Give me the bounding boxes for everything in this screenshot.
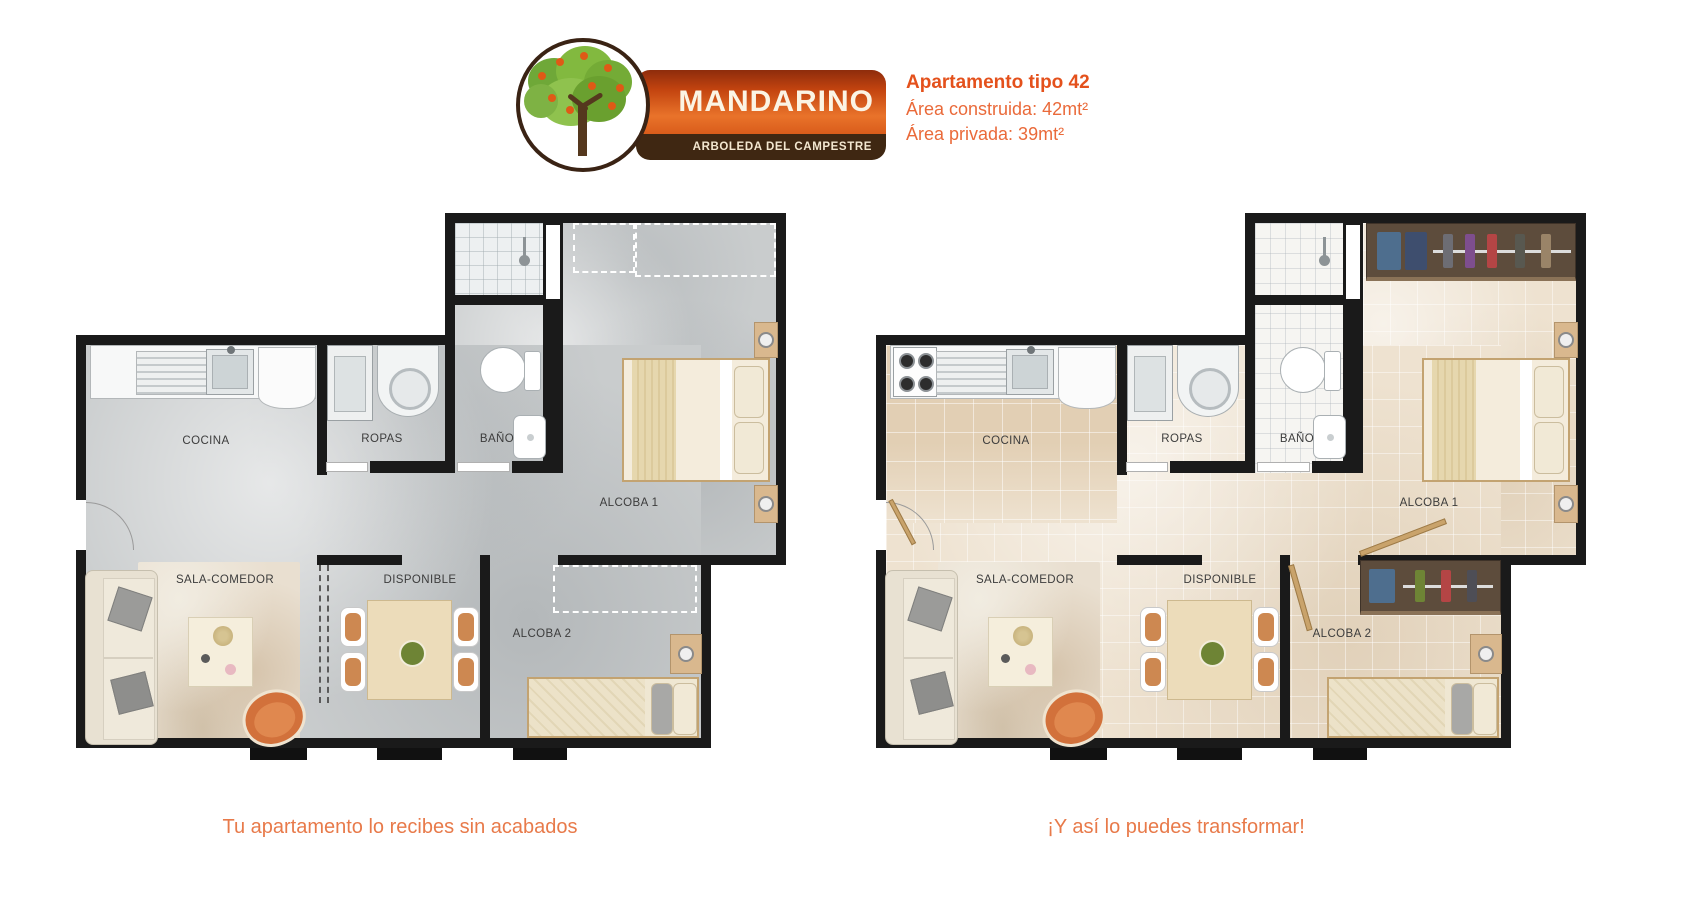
kitchen-faucet (1027, 346, 1035, 354)
wall (876, 738, 1511, 748)
folded-clothes (1405, 232, 1427, 270)
room-label-ropas: ROPAS (361, 433, 402, 445)
tree-fruit (556, 58, 564, 66)
bed-sheet (1520, 360, 1532, 480)
stove-burner (899, 353, 915, 369)
stove-burner (899, 376, 915, 392)
wall (317, 555, 402, 565)
optional-wall-outline (319, 565, 329, 703)
nightstand (1554, 322, 1578, 358)
bed-alcoba1 (622, 358, 770, 482)
tree-fruit (616, 84, 624, 92)
wall (76, 738, 711, 748)
bed-blanket (632, 360, 676, 480)
bed-alcoba2 (1327, 677, 1499, 738)
floorplan-sin-acabados: COCINA ROPAS BAÑO ALCOBA 1 SALA-COMEDOR … (76, 213, 786, 748)
wall (480, 555, 490, 748)
hanging-clothes (1441, 570, 1451, 602)
bed-blanket (529, 679, 645, 736)
nightstand-lamp (678, 646, 694, 662)
stove-burner (918, 376, 934, 392)
coffee-table (188, 617, 253, 687)
dining-chair (453, 652, 479, 692)
page: { "header": { "brand": "MANDARINO", "tag… (0, 0, 1701, 900)
bed-alcoba1 (1422, 358, 1570, 482)
room-label-sala-comedor: SALA-COMEDOR (976, 574, 1074, 586)
closet-alcoba1 (1366, 223, 1576, 281)
bed-sheet (720, 360, 732, 480)
wall (1245, 213, 1586, 223)
room-label-sala-comedor: SALA-COMEDOR (176, 574, 274, 586)
wall (1117, 555, 1202, 565)
floorplan-transformado: COCINA ROPAS BAÑO ALCOBA 1 SALA-COMEDOR … (876, 213, 1586, 748)
wall (445, 213, 455, 473)
apartment-info: Apartamento tipo 42 Área construida: 42m… (906, 72, 1246, 149)
dining-chair (1253, 652, 1279, 692)
nightstand-knob (1558, 332, 1574, 348)
room-label-cocina: COCINA (182, 435, 229, 447)
hanging-clothes (1443, 234, 1453, 268)
nightstand (1554, 485, 1578, 523)
optional-closet-outline (573, 223, 635, 273)
laundry-sink (327, 345, 373, 421)
water-heater (1177, 345, 1239, 417)
hanging-clothes (1541, 234, 1551, 268)
logo-banner-brown: ARBOLEDA DEL CAMPESTRE (636, 134, 886, 160)
bathroom-door-gap (546, 225, 560, 299)
nightstand-knob (1558, 496, 1574, 512)
hanging-clothes (1415, 570, 1425, 602)
pillow (734, 422, 764, 474)
dining-chair (453, 607, 479, 647)
water-heater-lid (1189, 368, 1231, 410)
hanging-clothes (1515, 234, 1525, 268)
dining-chair (1140, 607, 1166, 647)
folded-clothes (1377, 232, 1401, 270)
dining-table (367, 600, 452, 700)
room-label-alcoba1: ALCOBA 1 (1400, 497, 1459, 509)
nightstand-knob (758, 496, 774, 512)
kitchen-sink-basin (1012, 355, 1048, 389)
window-sill (1313, 748, 1367, 760)
laundry-sink-basin (1134, 356, 1166, 412)
wall (558, 555, 786, 565)
chair-seat (1258, 658, 1274, 686)
shower-divider-wall (455, 295, 543, 305)
armchair-cushion (1049, 696, 1101, 743)
nightstand-knob (758, 332, 774, 348)
toilet (1280, 347, 1326, 393)
bathroom-sink (1313, 415, 1346, 459)
brand-name: MANDARINO (678, 85, 874, 119)
tree-fruit (608, 102, 616, 110)
dining-chair (340, 652, 366, 692)
tree-fruit (566, 106, 574, 114)
kitchen-drainboard (936, 351, 1008, 395)
nightstand (754, 485, 778, 523)
table-decor (225, 664, 236, 675)
bathroom-sink-drain (1327, 434, 1334, 441)
nightstand-lamp (1478, 646, 1494, 662)
nightstand (1470, 634, 1502, 674)
kitchen-sink-basin (212, 355, 248, 389)
hanging-clothes (1467, 570, 1477, 602)
wall (876, 335, 1255, 345)
coffee-table (988, 617, 1053, 687)
toilet (480, 347, 526, 393)
hanging-clothes (1465, 234, 1475, 268)
tree-fruit (588, 82, 596, 90)
chair-seat (458, 613, 474, 641)
window-sill (513, 748, 567, 760)
bathroom-door-leaf (457, 462, 510, 472)
window-sill (250, 748, 307, 760)
room-label-ropas: ROPAS (1161, 433, 1202, 445)
wall (317, 335, 327, 475)
tree-fruit (580, 52, 588, 60)
tree-fruit (548, 94, 556, 102)
brand-tagline: ARBOLEDA DEL CAMPESTRE (693, 141, 872, 153)
sofa-cushion-split (103, 657, 153, 659)
area-private-text: Área privada: 39mt² (906, 124, 1246, 145)
wall (701, 555, 711, 748)
centerpiece-bowl (1199, 640, 1226, 667)
sofa-cushion-split (903, 657, 953, 659)
window-sill (1177, 748, 1242, 760)
logo-banner-orange: MANDARINO (636, 70, 886, 134)
room-label-disponible: DISPONIBLE (383, 574, 456, 586)
wall (76, 335, 455, 345)
pillow (1451, 683, 1473, 735)
optional-closet-outline (553, 565, 697, 613)
tree-fruit (604, 64, 612, 72)
pillow (734, 366, 764, 418)
kitchen-sink (1006, 349, 1054, 395)
table-decor (1001, 654, 1010, 663)
laundry-door-leaf (326, 462, 368, 472)
dining-chair (340, 607, 366, 647)
bed-alcoba2 (527, 677, 699, 738)
shower-head (1319, 255, 1330, 266)
wall (1501, 555, 1511, 748)
chair-seat (458, 658, 474, 686)
kitchen-drainboard (136, 351, 208, 395)
water-heater (377, 345, 439, 417)
room-label-alcoba1: ALCOBA 1 (600, 497, 659, 509)
shower-head (519, 255, 530, 266)
table-decor (1025, 664, 1036, 675)
room-label-alcoba2: ALCOBA 2 (1313, 628, 1372, 640)
room-label-alcoba2: ALCOBA 2 (513, 628, 572, 640)
kitchen-appliance (258, 347, 316, 409)
pillow (673, 683, 697, 735)
entry-door-gap (76, 500, 86, 550)
table-decor (201, 654, 210, 663)
window-sill (377, 748, 442, 760)
laundry-sink (1127, 345, 1173, 421)
folded-clothes (1369, 569, 1395, 603)
bathroom-door-gap (1346, 225, 1360, 299)
laundry-door-leaf (1126, 462, 1168, 472)
caption-left: Tu apartamento lo recibes sin acabados (80, 816, 720, 839)
nightstand (754, 322, 778, 358)
wall (1312, 461, 1363, 473)
bed-blanket (1329, 679, 1445, 736)
wall (1170, 461, 1255, 473)
area-built-text: Área construida: 42mt² (906, 99, 1246, 120)
caption-right: ¡Y así lo puedes transformar! (856, 816, 1496, 839)
stove (893, 347, 937, 397)
wall (1280, 555, 1290, 748)
dining-chair (1140, 652, 1166, 692)
pillow (1534, 422, 1564, 474)
wall (445, 213, 786, 223)
kitchen-sink (206, 349, 254, 395)
bathroom-sink-drain (527, 434, 534, 441)
logo-tree-icon (516, 38, 650, 172)
stove-burner (918, 353, 934, 369)
water-heater-lid (389, 368, 431, 410)
table-plant (1013, 626, 1033, 646)
shower-divider-wall (1255, 295, 1343, 305)
dining-chair (1253, 607, 1279, 647)
wall (512, 461, 563, 473)
dining-table (1167, 600, 1252, 700)
chair-seat (1258, 613, 1274, 641)
kitchen-appliance (1058, 347, 1116, 409)
chair-seat (1145, 613, 1161, 641)
chair-seat (1145, 658, 1161, 686)
room-label-bano: BAÑO (1280, 433, 1314, 445)
pillow (651, 683, 673, 735)
hanging-clothes (1487, 234, 1497, 268)
table-plant (213, 626, 233, 646)
room-label-bano: BAÑO (480, 433, 514, 445)
bathroom-sink (513, 415, 546, 459)
wall (1117, 335, 1127, 475)
bathroom-door-leaf (1257, 462, 1310, 472)
chair-seat (345, 658, 361, 686)
entry-door-gap (876, 500, 886, 550)
closet-alcoba2 (1360, 560, 1501, 615)
sofa (85, 570, 158, 745)
logo-banner: MANDARINO ARBOLEDA DEL CAMPESTRE (636, 70, 886, 160)
tree-trunk (578, 104, 587, 156)
kitchen-faucet (227, 346, 235, 354)
window-sill (1050, 748, 1107, 760)
pillow (1534, 366, 1564, 418)
tree-fruit (538, 72, 546, 80)
optional-closet-outline (635, 223, 776, 277)
wall (1245, 213, 1255, 473)
apartment-type-title: Apartamento tipo 42 (906, 72, 1246, 94)
armchair-cushion (249, 696, 301, 743)
sofa (885, 570, 958, 745)
centerpiece-bowl (399, 640, 426, 667)
toilet-tank (1324, 351, 1341, 391)
bed-blanket (1432, 360, 1476, 480)
chair-seat (345, 613, 361, 641)
room-label-disponible: DISPONIBLE (1183, 574, 1256, 586)
wall (370, 461, 455, 473)
nightstand (670, 634, 702, 674)
room-label-cocina: COCINA (982, 435, 1029, 447)
toilet-tank (524, 351, 541, 391)
laundry-sink-basin (334, 356, 366, 412)
pillow (1473, 683, 1497, 735)
